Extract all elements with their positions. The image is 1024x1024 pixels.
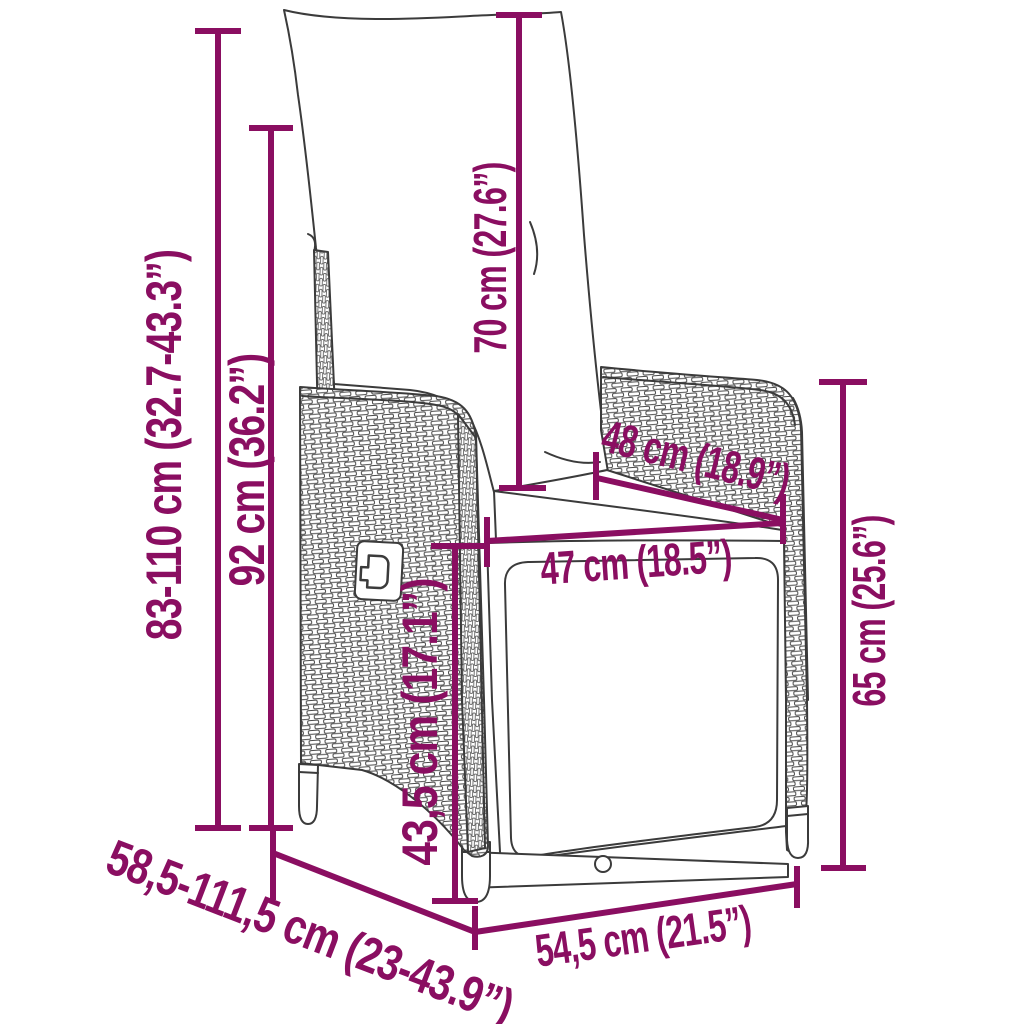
dimension-diagram: 83-110 cm (32.7-43.3”) 92 cm (36.2”) 70 … (0, 0, 1024, 1024)
dim-label-total-height-range: 83-110 cm (32.7-43.3”) (139, 250, 189, 640)
footrest-panel (487, 540, 786, 862)
dim-label-backrest-height: 92 cm (36.2”) (222, 354, 272, 587)
caster-wheel (595, 856, 611, 872)
back-left-leg (299, 764, 318, 824)
dim-label-seat-width: 47 cm (18.5”) (539, 532, 733, 591)
dim-label-seat-height: 43,5 cm (17.1”) (395, 578, 445, 865)
front-right-leg (787, 806, 808, 858)
dim-label-armrest-height: 65 cm (25.6”) (846, 515, 892, 706)
base-rail (468, 852, 788, 888)
dim-label-back-cushion-height: 70 cm (27.6”) (467, 162, 513, 353)
